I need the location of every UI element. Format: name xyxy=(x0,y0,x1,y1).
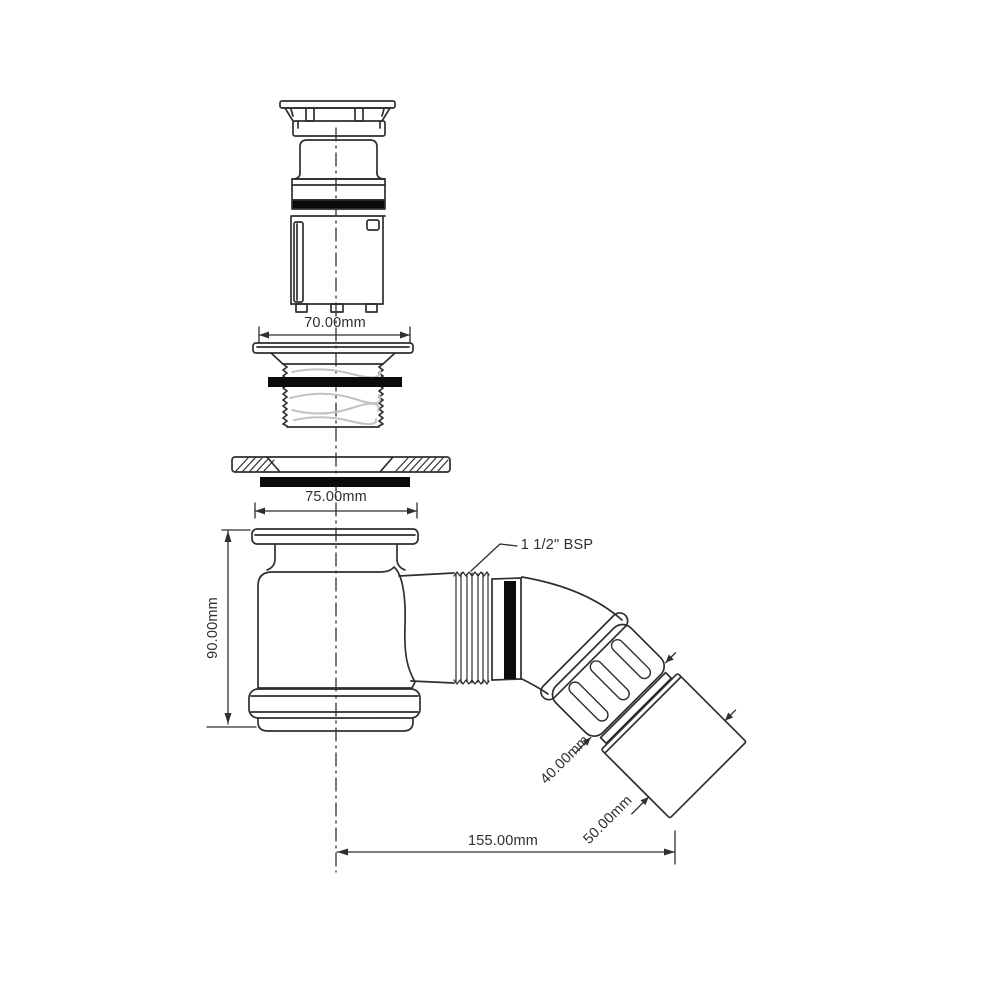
dimension-label-70mm: 70.00mm xyxy=(304,315,366,331)
compression-nut xyxy=(538,610,673,745)
hatching xyxy=(236,458,448,471)
shower-trap-diagram xyxy=(0,0,1000,1000)
outlet-thread xyxy=(399,572,521,684)
dimension-50mm xyxy=(629,708,738,817)
waste-cartridge xyxy=(291,140,385,312)
trap-body xyxy=(249,529,420,731)
dimension-label-90mm: 90.00mm xyxy=(205,597,221,659)
flange-gasket-seal xyxy=(268,377,402,387)
sealing-washer xyxy=(232,457,450,472)
thread-spec-label: 1 1/2" BSP xyxy=(521,537,593,553)
outlet-seal-ring xyxy=(504,581,516,679)
rubber-washer xyxy=(260,477,410,487)
o-ring-seal xyxy=(292,200,385,209)
threaded-flange xyxy=(253,343,413,427)
bsp-leader-line xyxy=(471,544,517,571)
dimension-label-155mm: 155.00mm xyxy=(468,833,538,849)
compression-washer xyxy=(601,673,672,744)
grate-cap xyxy=(280,101,395,136)
dimension-label-75mm: 75.00mm xyxy=(305,489,367,505)
technical-drawing-canvas: 70.00mm 75.00mm 90.00mm 1 1/2" BSP 40.00… xyxy=(0,0,1000,1000)
